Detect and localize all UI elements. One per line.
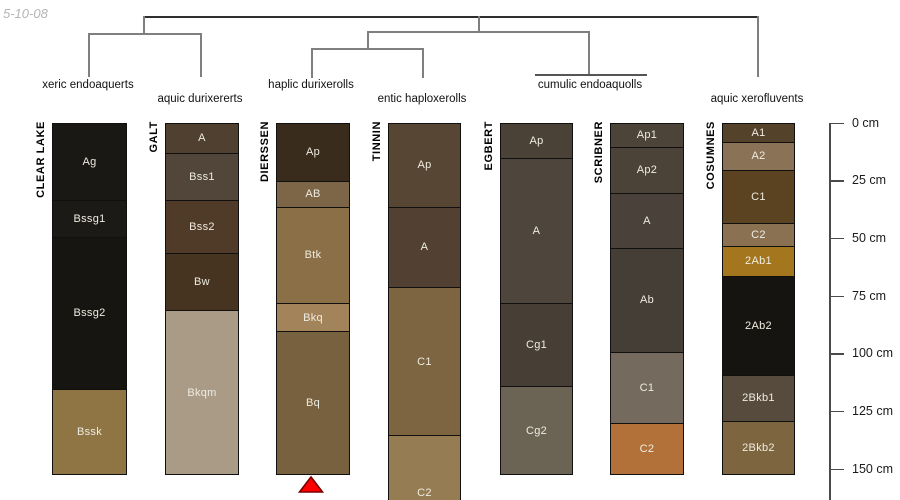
soil-horizon-egbert-cg2: Cg2 xyxy=(501,386,572,474)
soil-horizon-tinnin-a: A xyxy=(389,207,460,288)
horizon-label: C1 xyxy=(417,356,432,368)
depth-tick-label: 125 cm xyxy=(852,404,893,418)
profile-column-cosumnes: A1A2C1C22Ab12Ab22Bkb12Bkb2 xyxy=(722,123,795,476)
taxon-label-cumulic-endoaquolls: cumulic endoaquolls xyxy=(505,79,675,91)
taxon-label-entic-haploxerolls: entic haploxerolls xyxy=(337,93,507,105)
soil-horizon-clear-lake-bssk: Bssk xyxy=(53,389,126,474)
soil-horizon-cosumnes-2ab1: 2Ab1 xyxy=(723,246,794,276)
triangle-up-icon xyxy=(298,475,324,494)
soil-horizon-clear-lake-bssg1: Bssg1 xyxy=(53,200,126,237)
soil-horizon-scribner-ab: Ab xyxy=(611,248,683,352)
soil-horizon-tinnin-c2: C2 xyxy=(389,435,460,500)
depth-tick xyxy=(829,238,844,240)
horizon-label: C2 xyxy=(417,487,432,499)
dendrogram-stem xyxy=(757,16,759,77)
horizon-label: Bssg1 xyxy=(73,213,105,225)
soil-horizon-dierssen-ap: Ap xyxy=(277,124,349,182)
horizon-label: Btk xyxy=(305,249,322,261)
profile-column-scribner: Ap1Ap2AAbC1C2 xyxy=(610,123,684,476)
horizon-label: Bss1 xyxy=(189,171,215,183)
depth-tick-label: 50 cm xyxy=(852,231,886,245)
taxon-label-xeric-endoaquerts: xeric endoaquerts xyxy=(3,79,173,91)
profile-column-dierssen: ApABBtkBkqBq xyxy=(276,123,350,476)
dendrogram-stem xyxy=(422,48,424,78)
horizon-label: Cg1 xyxy=(526,339,547,351)
profile-column-galt: ABss1Bss2BwBkqm xyxy=(165,123,239,476)
dendrogram-stem xyxy=(200,33,202,77)
dendrogram-stem xyxy=(367,31,369,50)
horizon-label: A1 xyxy=(751,127,765,139)
horizon-label: 2Ab1 xyxy=(745,255,772,267)
horizon-label: Bkq xyxy=(303,312,323,324)
horizon-label: AB xyxy=(305,188,320,200)
soil-horizon-tinnin-c1: C1 xyxy=(389,287,460,435)
profile-name-dierssen: DIERSSEN xyxy=(259,121,271,182)
horizon-label: Bssg2 xyxy=(73,307,105,319)
horizon-label: C2 xyxy=(640,443,655,455)
soil-horizon-clear-lake-bssg2: Bssg2 xyxy=(53,237,126,389)
horizon-label: C1 xyxy=(751,191,766,203)
horizon-label: A xyxy=(198,132,206,144)
date-label: 5-10-08 xyxy=(3,6,48,21)
horizon-label: Ag xyxy=(82,156,96,168)
soil-horizon-scribner-ap2: Ap2 xyxy=(611,147,683,193)
dendrogram-stem xyxy=(588,31,590,76)
depth-tick-label: 100 cm xyxy=(852,346,893,360)
profile-name-scribner: SCRIBNER xyxy=(593,121,605,183)
soil-horizon-scribner-ap1: Ap1 xyxy=(611,124,683,147)
soil-horizon-galt-bss2: Bss2 xyxy=(166,200,238,253)
profile-name-galt: GALT xyxy=(148,121,160,153)
horizon-label: Bss2 xyxy=(189,221,215,233)
soil-horizon-cosumnes-c1: C1 xyxy=(723,170,794,223)
depth-tick-label: 0 cm xyxy=(852,116,879,130)
dendrogram-hbar xyxy=(88,33,202,35)
soil-horizon-egbert-cg1: Cg1 xyxy=(501,303,572,386)
taxon-label-haplic-durixerolls: haplic durixerolls xyxy=(226,79,396,91)
dendrogram-stem xyxy=(311,48,313,78)
horizon-label: Bkqm xyxy=(187,387,216,399)
soil-horizon-scribner-a: A xyxy=(611,193,683,248)
soil-horizon-cosumnes-a1: A1 xyxy=(723,124,794,142)
profile-column-clear-lake: AgBssg1Bssg2Bssk xyxy=(52,123,127,476)
soil-horizon-dierssen-bkq: Bkq xyxy=(277,303,349,331)
horizon-label: Ap xyxy=(417,159,431,171)
soil-horizon-dierssen-btk: Btk xyxy=(277,207,349,304)
depth-tick xyxy=(829,123,844,125)
depth-tick xyxy=(829,469,844,471)
horizon-label: Bw xyxy=(194,276,210,288)
depth-tick xyxy=(829,353,844,355)
depth-axis-line xyxy=(829,123,831,500)
soil-horizon-cosumnes-a2: A2 xyxy=(723,142,794,170)
horizon-label: C2 xyxy=(751,229,766,241)
horizon-label: Bssk xyxy=(77,426,102,438)
soil-profile-figure: 5-10-08 xeric endoaquertsaquic durixerer… xyxy=(0,0,900,500)
horizon-label: Ap xyxy=(529,135,543,147)
soil-horizon-scribner-c1: C1 xyxy=(611,352,683,424)
profile-name-clear-lake: CLEAR LAKE xyxy=(35,121,47,198)
soil-horizon-egbert-a: A xyxy=(501,158,572,303)
horizon-label: Bq xyxy=(306,397,320,409)
dendrogram-stem xyxy=(143,16,145,35)
horizon-label: 2Ab2 xyxy=(745,320,772,332)
soil-horizon-cosumnes-2bkb1: 2Bkb1 xyxy=(723,375,794,421)
taxon-label-aquic-xerofluvents: aquic xerofluvents xyxy=(672,93,842,105)
depth-tick-label: 150 cm xyxy=(852,462,893,476)
soil-horizon-scribner-c2: C2 xyxy=(611,423,683,474)
soil-horizon-galt-bkqm: Bkqm xyxy=(166,310,238,474)
soil-horizon-galt-bss1: Bss1 xyxy=(166,153,238,199)
soil-horizon-clear-lake-ag: Ag xyxy=(53,124,126,200)
profile-name-tinnin: TINNIN xyxy=(371,121,383,161)
horizon-label: A2 xyxy=(751,150,765,162)
depth-tick xyxy=(829,296,844,298)
dendrogram-stem xyxy=(88,33,90,77)
profile-column-egbert: ApACg1Cg2 xyxy=(500,123,573,476)
depth-tick xyxy=(829,180,844,182)
horizon-label: A xyxy=(643,215,651,227)
soil-horizon-cosumnes-c2: C2 xyxy=(723,223,794,246)
horizon-label: 2Bkb1 xyxy=(742,392,775,404)
horizon-label: Ab xyxy=(640,294,654,306)
depth-tick-label: 75 cm xyxy=(852,289,886,303)
soil-horizon-dierssen-ab: AB xyxy=(277,181,349,206)
profile-name-cosumnes: COSUMNES xyxy=(705,121,717,189)
soil-horizon-tinnin-ap: Ap xyxy=(389,124,460,207)
horizon-label: C1 xyxy=(640,382,655,394)
horizon-label: Ap1 xyxy=(637,129,657,141)
horizon-label: Ap2 xyxy=(637,164,657,176)
depth-tick-label: 25 cm xyxy=(852,173,886,187)
horizon-label: A xyxy=(533,225,541,237)
soil-horizon-dierssen-bq: Bq xyxy=(277,331,349,474)
horizon-label: Ap xyxy=(306,146,320,158)
soil-horizon-cosumnes-2ab2: 2Ab2 xyxy=(723,276,794,375)
dendrogram-hbar xyxy=(143,16,759,18)
horizon-label: Cg2 xyxy=(526,425,547,437)
horizon-label: A xyxy=(421,241,429,253)
soil-horizon-egbert-ap: Ap xyxy=(501,124,572,159)
dendrogram-hbar xyxy=(367,31,590,33)
soil-horizon-galt-bw: Bw xyxy=(166,253,238,311)
soil-horizon-galt-a: A xyxy=(166,124,238,154)
profile-name-egbert: EGBERT xyxy=(483,121,495,170)
dendrogram-hbar xyxy=(535,74,647,76)
depth-tick xyxy=(829,411,844,413)
profile-column-tinnin: ApAC1C2 xyxy=(388,123,461,500)
horizon-label: 2Bkb2 xyxy=(742,442,775,454)
taxon-label-aquic-durixererts: aquic durixererts xyxy=(115,93,285,105)
soil-horizon-cosumnes-2bkb2: 2Bkb2 xyxy=(723,421,794,474)
dendrogram-hbar xyxy=(311,48,424,50)
